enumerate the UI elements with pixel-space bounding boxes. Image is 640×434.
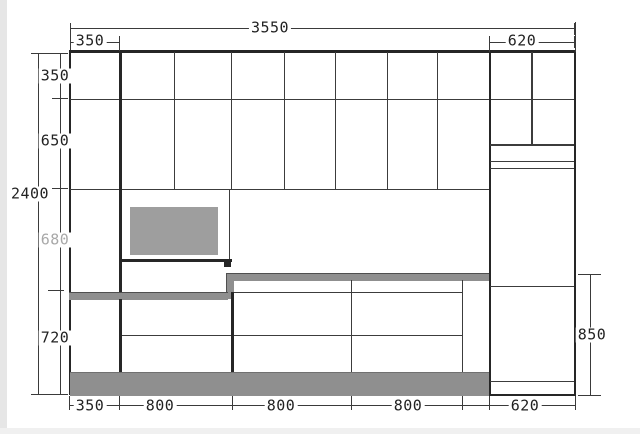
elevation-drawing: 3550 350 620 2400 350 650 680 720 850 35… <box>0 0 640 434</box>
dim-tick <box>70 23 71 35</box>
dim-label-left-seg2: 650 <box>39 134 72 149</box>
base-divider <box>351 280 353 372</box>
dim-label-bottom-seg5: 620 <box>509 399 542 414</box>
dim-tick <box>70 36 71 50</box>
tall-cabinet-line <box>490 286 574 287</box>
dim-label-total-width: 3550 <box>249 21 291 36</box>
hood-section-left-edge <box>119 52 122 292</box>
dim-tick <box>119 36 120 51</box>
upper-divider <box>335 52 336 189</box>
tall-cabinet-line <box>490 144 574 146</box>
upper-divider <box>387 52 388 189</box>
base-drawer-line-top <box>231 292 462 293</box>
page-left-edge <box>0 0 7 434</box>
dim-tick <box>578 274 601 275</box>
tall-cabinet-mid-divider <box>531 52 533 145</box>
countertop-high <box>228 273 490 281</box>
upper-divider <box>231 52 232 189</box>
base-drawer-line-mid <box>119 335 462 336</box>
upper-divider <box>284 52 285 189</box>
toe-kick <box>70 372 490 396</box>
range-hood-body <box>130 207 218 255</box>
tall-cabinet-plinth-line <box>490 381 574 382</box>
dim-tick <box>489 36 490 52</box>
dim-tick <box>31 394 68 395</box>
countertop-low <box>69 292 228 300</box>
tall-cabinet-line <box>490 161 574 162</box>
hood-section-right-edge <box>229 189 231 260</box>
dim-label-top-left: 350 <box>74 34 107 49</box>
dim-label-bottom-seg1: 350 <box>74 399 107 414</box>
tall-cabinet-left-edge <box>489 52 491 395</box>
dim-tick <box>52 98 68 99</box>
dim-tick <box>48 290 64 291</box>
dim-tick <box>232 396 233 410</box>
dim-tick <box>31 53 68 54</box>
dim-label-counter-height: 850 <box>576 328 609 343</box>
hood-section-corner-mark <box>224 259 231 267</box>
dim-label-bottom-seg4: 800 <box>392 399 425 414</box>
upper-divider <box>174 52 175 189</box>
upper-shelf-line <box>70 99 574 100</box>
dim-tick <box>489 396 490 410</box>
dim-tick <box>578 395 601 396</box>
dim-tick <box>574 23 575 35</box>
tall-cabinet-line <box>490 168 574 169</box>
uppers-bottom-line <box>70 189 490 190</box>
dim-label-top-right: 620 <box>506 34 539 49</box>
page-bottom-edge <box>0 428 640 434</box>
dim-tick <box>574 36 575 48</box>
base-divider-thick <box>119 299 122 372</box>
base-divider-thick <box>231 292 234 372</box>
dim-label-left-seg1: 350 <box>39 69 72 84</box>
dim-tick <box>52 188 68 189</box>
dim-tick <box>119 396 120 410</box>
dim-tick <box>575 396 576 410</box>
cabinet-top-edge <box>69 50 576 53</box>
upper-divider <box>437 52 438 189</box>
dim-tick <box>69 396 70 410</box>
dim-label-left-seg4: 720 <box>39 331 72 346</box>
dim-label-total-height: 2400 <box>9 187 51 202</box>
dim-label-bottom-seg2: 800 <box>144 399 177 414</box>
right-edge-line <box>574 52 576 395</box>
dim-label-bottom-seg3: 800 <box>265 399 298 414</box>
dim-tick <box>351 396 352 410</box>
hood-section-bottom <box>119 259 232 262</box>
dim-line-3550 <box>71 28 574 29</box>
dim-label-left-seg3: 680 <box>39 233 72 248</box>
dim-tick <box>462 396 463 410</box>
